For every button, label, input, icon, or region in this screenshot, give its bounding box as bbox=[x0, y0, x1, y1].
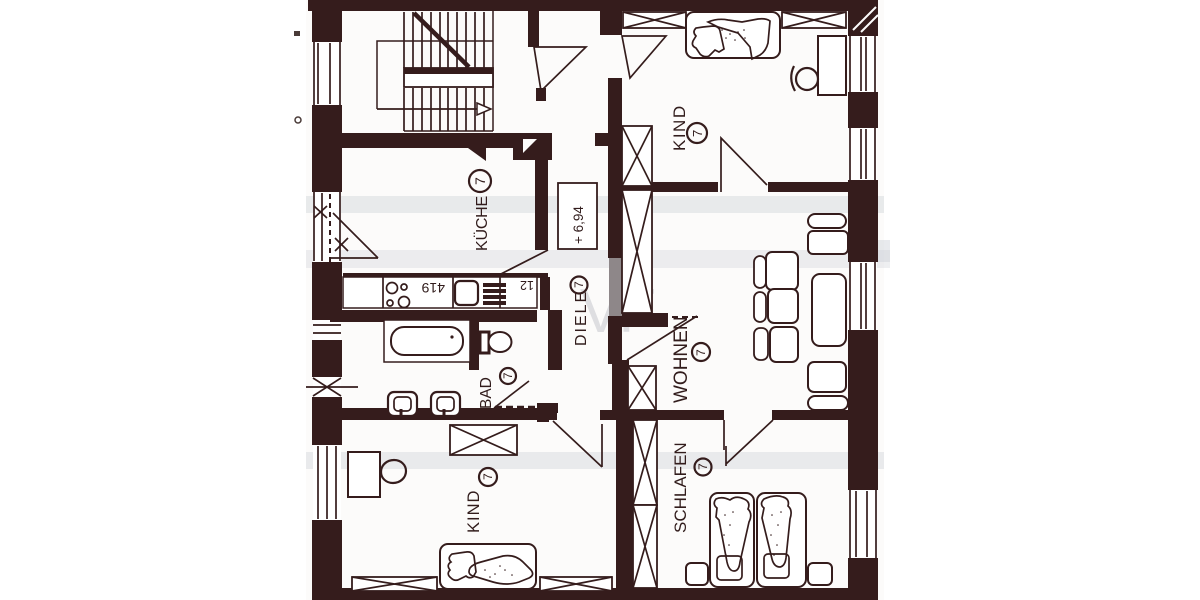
svg-text:7: 7 bbox=[572, 281, 586, 288]
svg-text:KÜCHE: KÜCHE bbox=[473, 196, 491, 251]
svg-text:KIND: KIND bbox=[670, 104, 689, 151]
svg-text:7: 7 bbox=[694, 349, 708, 356]
svg-text:DIELE: DIELE bbox=[573, 290, 590, 346]
svg-text:SCHLAFEN: SCHLAFEN bbox=[671, 442, 690, 533]
svg-text:12: 12 bbox=[520, 278, 534, 292]
svg-text:7: 7 bbox=[690, 130, 705, 137]
svg-text:BAD: BAD bbox=[478, 377, 495, 409]
svg-text:+ 6,94: + 6,94 bbox=[571, 206, 586, 244]
svg-text:7: 7 bbox=[696, 463, 710, 470]
svg-text:419: 419 bbox=[421, 280, 445, 296]
svg-text:7: 7 bbox=[481, 473, 495, 480]
svg-text:7: 7 bbox=[503, 373, 515, 379]
svg-text:7: 7 bbox=[472, 177, 488, 185]
svg-text:KIND: KIND bbox=[465, 490, 483, 533]
svg-text:WOHNEN: WOHNEN bbox=[671, 316, 692, 403]
